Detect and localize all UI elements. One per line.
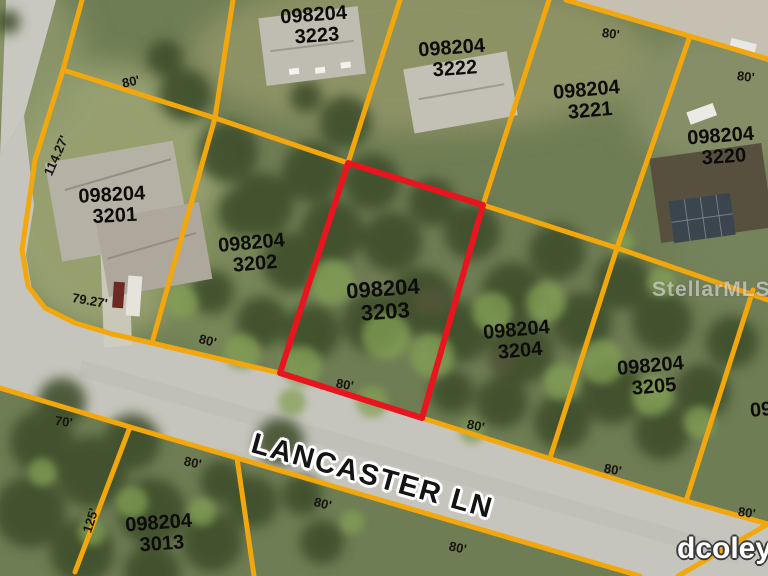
parcel-lot: 3222 [432, 57, 487, 82]
parcel-lot: 3220 [701, 145, 756, 170]
parcel-label-3202: 098204 3202 [217, 230, 287, 278]
parcel-lot: 3203 [360, 297, 422, 324]
mls-watermark: StellarMLS [652, 278, 768, 302]
dim-label: 70' [54, 413, 73, 430]
parcel-label-3203-highlighted: 098204 3203 [345, 274, 421, 325]
parcel-lot: 3013 [139, 532, 194, 557]
truck [126, 276, 143, 317]
parcel-label-3201: 098204 3201 [78, 183, 147, 228]
parcel-label-3013: 098204 3013 [125, 511, 195, 558]
dim-label: 80' [736, 68, 755, 85]
dim-label: 80' [601, 25, 620, 42]
parcel-label-3204: 098204 3204 [482, 317, 552, 365]
parcel-label-3223: 098204 3223 [280, 3, 350, 50]
dim-label: 80' [335, 376, 355, 394]
parcel-label-3220: 098204 3220 [687, 124, 757, 171]
parcel-lot: 3201 [92, 204, 147, 228]
parcel-lot: 3223 [294, 24, 349, 49]
parcel-label-3222: 098204 3222 [418, 36, 488, 83]
parcel-label-partial-top: 3224 [157, 0, 202, 5]
dim-label: 80' [603, 461, 623, 479]
photo-credit: dcoley [677, 532, 768, 566]
red-car [112, 282, 125, 309]
parcel-label-3221: 098204 3221 [552, 77, 622, 125]
parcel-label-3205: 098204 3205 [616, 353, 686, 401]
parcel-label-partial-right: 098204 [749, 395, 768, 422]
parcel-map-canvas: 098204 3223 098204 3222 098204 3221 0982… [0, 0, 768, 576]
dim-label: 80' [737, 504, 756, 521]
